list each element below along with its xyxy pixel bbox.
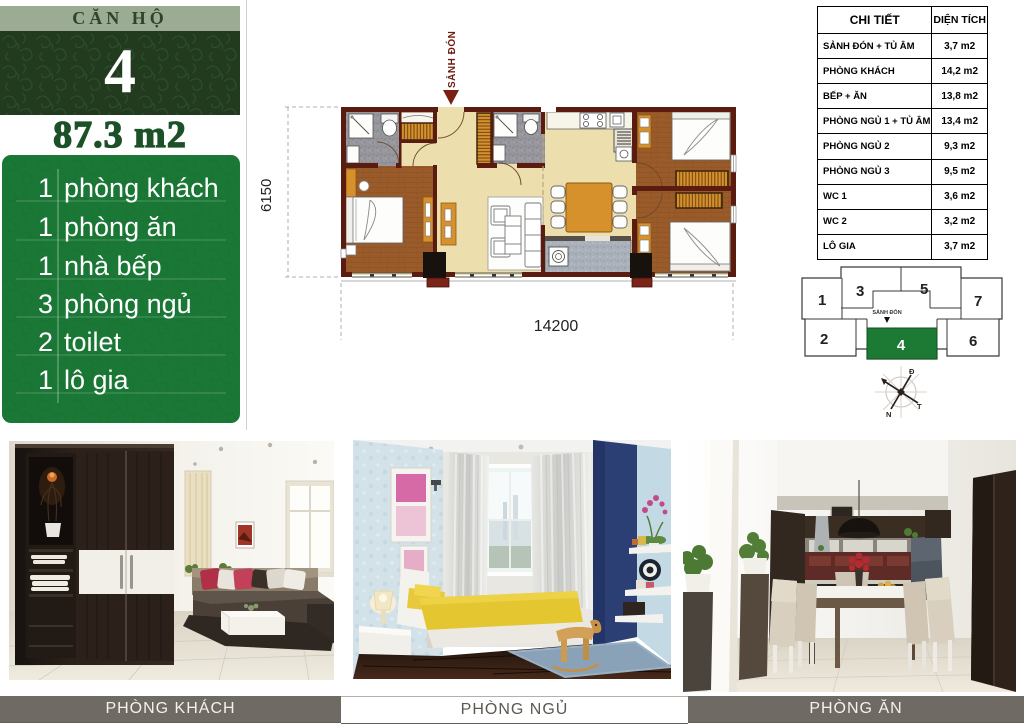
svg-text:1: 1	[38, 173, 53, 203]
svg-text:phòng ngủ: phòng ngủ	[64, 289, 192, 319]
svg-text:1: 1	[38, 212, 53, 242]
svg-text:1: 1	[818, 292, 826, 309]
svg-text:toilet: toilet	[64, 327, 122, 357]
svg-text:4: 4	[104, 35, 136, 106]
svg-text:SẢNH ĐÓN: SẢNH ĐÓN	[445, 31, 458, 88]
svg-text:14200: 14200	[534, 318, 579, 335]
svg-text:6150: 6150	[258, 179, 275, 212]
svg-text:7: 7	[974, 293, 982, 310]
svg-text:5: 5	[920, 281, 928, 298]
svg-text:phòng khách: phòng khách	[64, 173, 219, 203]
svg-text:2: 2	[38, 327, 53, 357]
svg-text:3: 3	[38, 289, 53, 319]
svg-text:3: 3	[856, 283, 864, 300]
svg-text:4: 4	[897, 337, 906, 354]
svg-text:N: N	[886, 410, 891, 419]
svg-text:SẢNH ĐÓN: SẢNH ĐÓN	[872, 308, 901, 316]
svg-text:lô gia: lô gia	[64, 365, 130, 395]
svg-text:2: 2	[820, 331, 828, 348]
svg-text:Đ: Đ	[909, 367, 915, 376]
svg-text:nhà bếp: nhà bếp	[64, 251, 162, 281]
svg-text:1: 1	[38, 365, 53, 395]
svg-text:T: T	[917, 402, 922, 411]
svg-text:6: 6	[969, 333, 977, 350]
svg-text:1: 1	[38, 251, 53, 281]
svg-text:phòng ăn: phòng ăn	[64, 212, 177, 242]
